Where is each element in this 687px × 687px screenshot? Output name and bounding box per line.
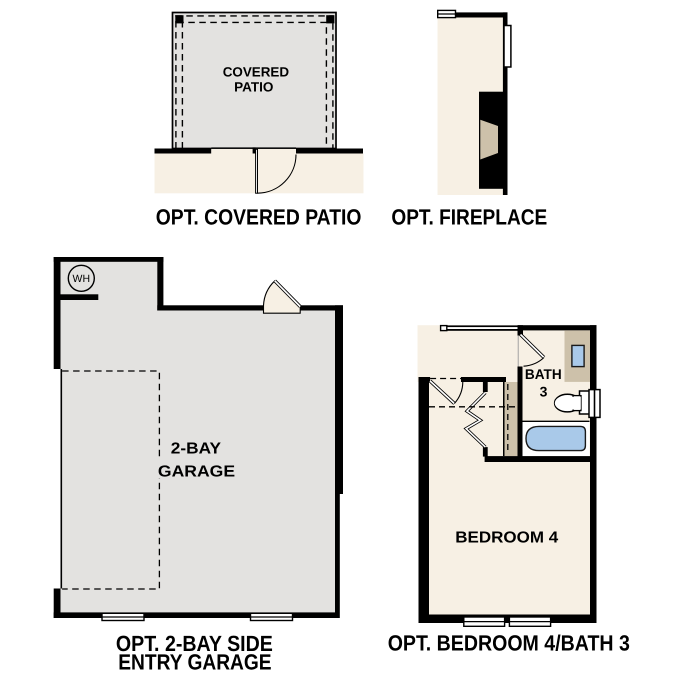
svg-text:ENTRY GARAGE: ENTRY GARAGE [118, 649, 271, 674]
svg-text:WH: WH [73, 273, 91, 285]
svg-text:BATH: BATH [525, 366, 562, 382]
svg-text:2-BAY: 2-BAY [171, 441, 222, 458]
svg-text:BEDROOM 4: BEDROOM 4 [455, 530, 558, 547]
svg-text:OPT. COVERED PATIO: OPT. COVERED PATIO [156, 205, 362, 230]
svg-text:OPT. BEDROOM 4/BATH 3: OPT. BEDROOM 4/BATH 3 [388, 631, 630, 656]
svg-text:OPT. FIREPLACE: OPT. FIREPLACE [391, 205, 547, 230]
svg-text:PATIO: PATIO [234, 80, 273, 95]
svg-text:3: 3 [540, 384, 548, 400]
svg-text:COVERED: COVERED [223, 64, 290, 79]
svg-text:GARAGE: GARAGE [158, 463, 236, 480]
